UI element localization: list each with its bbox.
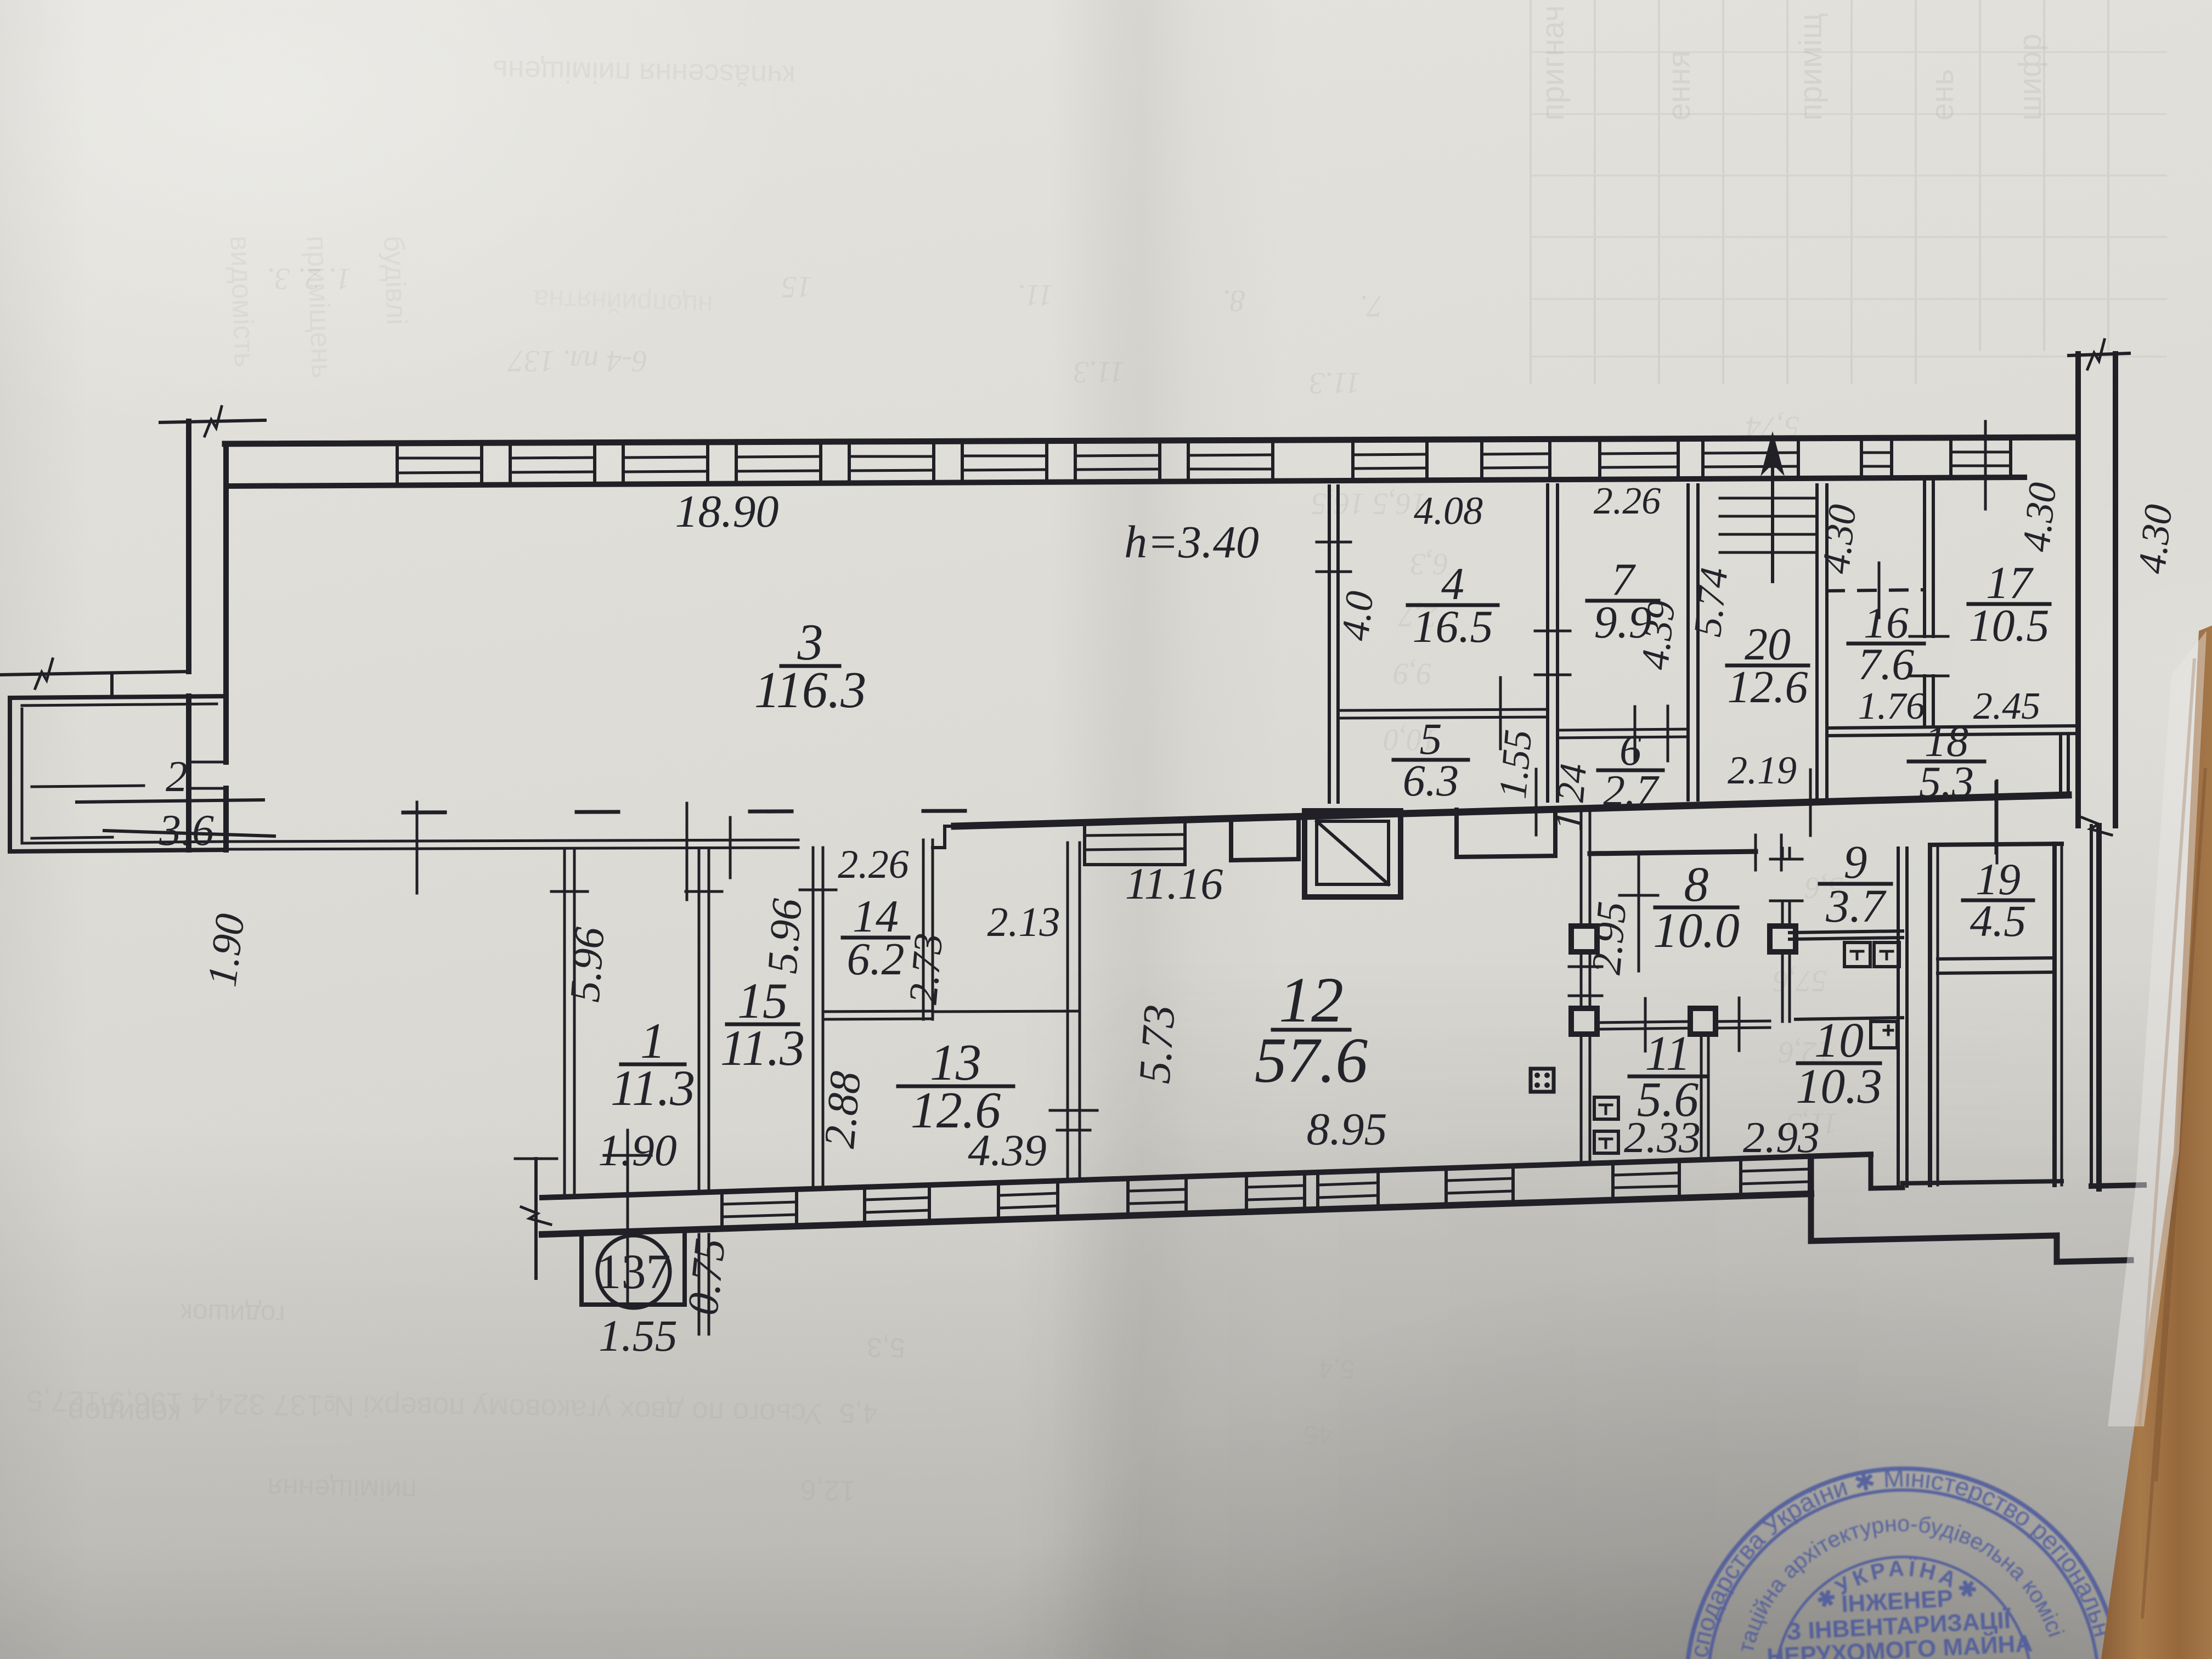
svg-text:5: 5 xyxy=(1420,714,1442,764)
svg-text:18.90: 18.90 xyxy=(675,486,779,537)
svg-text:2.26: 2.26 xyxy=(1594,480,1661,522)
svg-text:11.16: 11.16 xyxy=(1125,859,1223,909)
svg-text:11.: 11. xyxy=(1017,278,1053,312)
svg-text:кчnăscення пиiмiщень: кчnăscення пиiмiщень xyxy=(492,54,795,92)
svg-text:пригнач: пригнач xyxy=(1535,5,1571,121)
svg-text:3.7: 3.7 xyxy=(1825,879,1887,932)
svg-text:нцоприйнятна: нцоприйнятна xyxy=(533,284,713,321)
svg-text:4.30: 4.30 xyxy=(1814,503,1865,576)
svg-text:2.13: 2.13 xyxy=(988,899,1060,945)
svg-text:6,3: 6,3 xyxy=(1410,547,1448,581)
svg-text:3.6: 3.6 xyxy=(159,806,214,855)
svg-text:8.: 8. xyxy=(1222,284,1245,318)
svg-text:16: 16 xyxy=(1864,597,1909,647)
svg-text:10,0: 10,0 xyxy=(1384,723,1437,757)
svg-text:1.24: 1.24 xyxy=(1547,762,1595,833)
svg-text:17: 17 xyxy=(1986,557,2034,608)
svg-text:5,6: 5,6 xyxy=(1805,871,1843,905)
svg-text:4: 4 xyxy=(1441,558,1464,610)
svg-text:4.5: 4.5 xyxy=(1970,896,2027,946)
svg-text:2.7: 2.7 xyxy=(1603,767,1660,815)
svg-text:116.3: 116.3 xyxy=(754,662,867,719)
svg-text:h=3.40: h=3.40 xyxy=(1124,517,1259,568)
svg-text:3: 3 xyxy=(797,614,823,671)
svg-text:6.3: 6.3 xyxy=(1403,755,1459,805)
svg-text:9,9: 9,9 xyxy=(1393,657,1432,691)
svg-text:10.0: 10.0 xyxy=(1653,904,1740,958)
svg-text:2.26: 2.26 xyxy=(838,842,909,887)
svg-text:15: 15 xyxy=(781,270,812,304)
svg-text:6: 6 xyxy=(1620,726,1641,775)
svg-text:9.9: 9.9 xyxy=(1594,597,1652,648)
svg-text:2.45: 2.45 xyxy=(1973,685,2041,727)
svg-text:4.30: 4.30 xyxy=(2130,503,2181,576)
svg-text:9: 9 xyxy=(1844,836,1867,888)
svg-text:20: 20 xyxy=(1745,619,1791,670)
svg-text:2.19: 2.19 xyxy=(1728,748,1797,792)
svg-text:5.3: 5.3 xyxy=(1919,758,1974,806)
svg-text:11.3: 11.3 xyxy=(1073,355,1125,389)
svg-text:10.5: 10.5 xyxy=(1969,600,2050,651)
svg-text:4.30: 4.30 xyxy=(2014,481,2065,554)
svg-text:2,7: 2,7 xyxy=(1398,599,1437,633)
svg-text:4.08: 4.08 xyxy=(1414,489,1483,533)
svg-text:7: 7 xyxy=(1611,554,1636,605)
svg-text:ення: ення xyxy=(1661,50,1697,121)
svg-text:примiщень: примiщень xyxy=(301,235,337,379)
svg-text:4.39: 4.39 xyxy=(1633,599,1684,672)
svg-text:14: 14 xyxy=(853,891,899,942)
svg-text:5.74: 5.74 xyxy=(1685,566,1736,639)
svg-text:2: 2 xyxy=(166,753,188,801)
svg-text:будiвлi: будiвлi xyxy=(377,235,413,325)
svg-text:19: 19 xyxy=(1976,854,2021,904)
svg-text:примiщ: примiщ xyxy=(1793,13,1829,121)
svg-text:12.6: 12.6 xyxy=(1728,662,1808,713)
svg-text:ень: ень xyxy=(1925,69,1960,121)
svg-text:1.76: 1.76 xyxy=(1858,685,1926,727)
svg-text:11.3: 11.3 xyxy=(1309,366,1361,400)
svg-text:6-4 пл. 137: 6-4 пл. 137 xyxy=(507,344,647,378)
svg-text:1.55: 1.55 xyxy=(1491,728,1541,800)
svg-text:16.5: 16.5 xyxy=(1413,601,1493,652)
svg-text:16,5 16,5: 16,5 16,5 xyxy=(1311,487,1426,521)
svg-text:шифр: шифр xyxy=(2012,33,2048,121)
svg-text:5,74: 5,74 xyxy=(1746,410,1799,444)
svg-text:1. 2. 3.: 1. 2. 3. xyxy=(267,262,351,296)
svg-text:7.: 7. xyxy=(1359,289,1383,323)
svg-text:8: 8 xyxy=(1684,857,1709,912)
svg-text:18: 18 xyxy=(1925,718,1968,766)
svg-text:4.0: 4.0 xyxy=(1333,589,1382,643)
svg-text:видомiсть: видомiсть xyxy=(224,235,260,368)
svg-text:7.6: 7.6 xyxy=(1858,639,1915,689)
